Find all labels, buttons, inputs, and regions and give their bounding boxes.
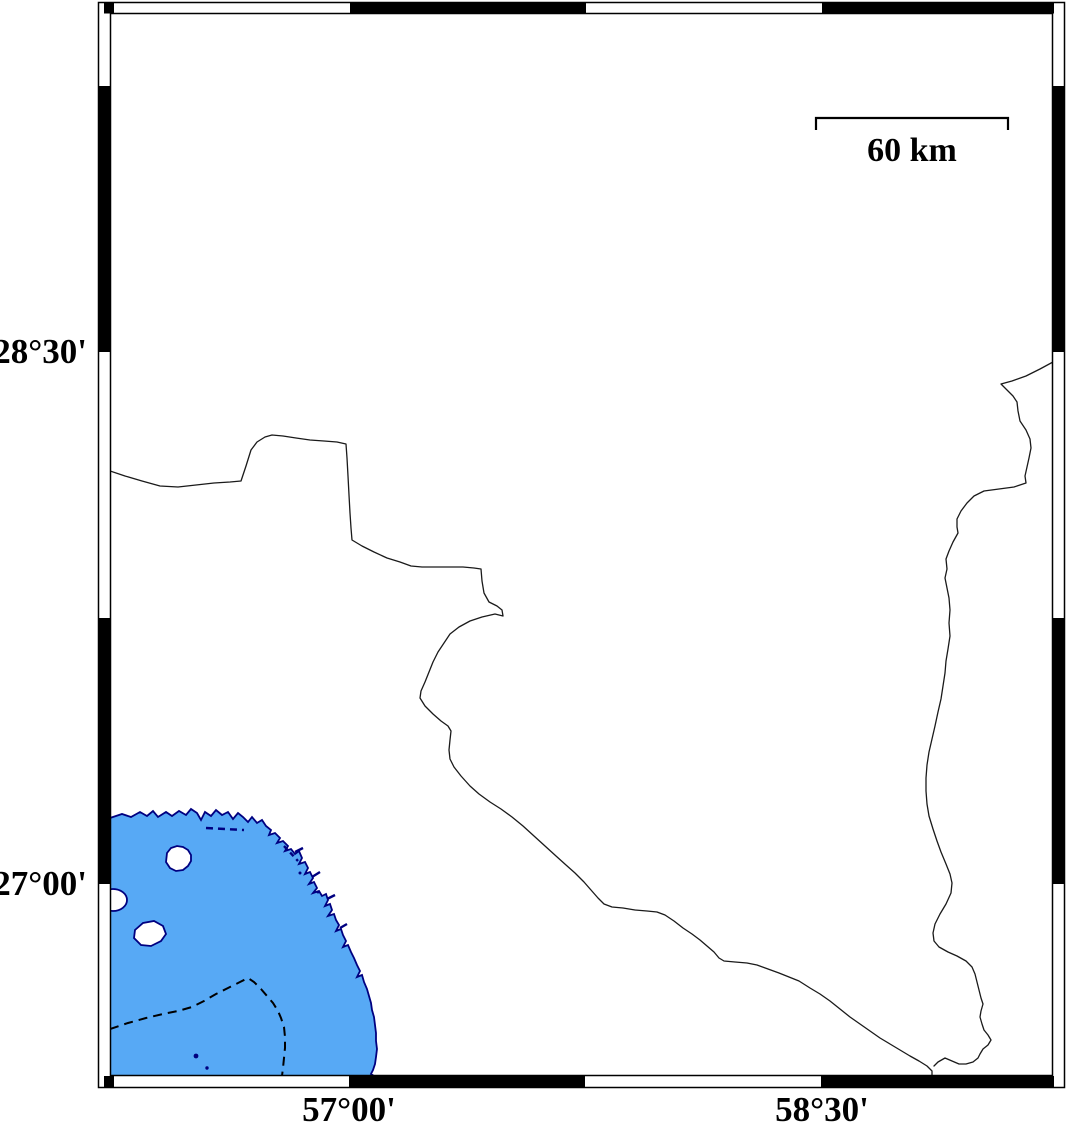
boundary-line-east bbox=[926, 362, 1053, 1066]
scale-bar-label: 60 km bbox=[867, 134, 957, 168]
lon-label-left: 57°00' bbox=[302, 1092, 396, 1124]
frame-tick-bottom-2 bbox=[349, 1076, 585, 1088]
frame-tick-bottom-3 bbox=[821, 1076, 1054, 1088]
coastal-spur-2 bbox=[312, 872, 320, 877]
lat-label-upper: 28°30' bbox=[0, 334, 87, 369]
island-1 bbox=[166, 846, 191, 871]
map-figure: 28°30' 27°00' 57°00' 58°30' 60 km bbox=[0, 0, 1066, 1124]
lat-label-lower: 27°00' bbox=[0, 866, 87, 901]
frame-tick-top-2 bbox=[350, 3, 586, 14]
frame-tick-left-2 bbox=[99, 618, 111, 884]
lon-label-right: 58°30' bbox=[775, 1092, 869, 1124]
sea-layer bbox=[99, 809, 377, 1076]
coastal-spur-3 bbox=[327, 895, 335, 899]
frame-tick-bottom-1 bbox=[104, 1076, 114, 1088]
islet-dot-1 bbox=[194, 1054, 199, 1059]
frame-tick-right-2 bbox=[1053, 618, 1065, 884]
frame-tick-left-1 bbox=[99, 86, 111, 352]
scale-bar-bracket bbox=[816, 118, 1008, 130]
frame-tick-top-1 bbox=[104, 3, 114, 14]
coastal-spur-4 bbox=[340, 924, 347, 928]
islet-dot-2 bbox=[205, 1066, 208, 1069]
islet-dot-3 bbox=[299, 872, 302, 875]
islet-dot-4 bbox=[317, 891, 320, 894]
frame-tick-top-3 bbox=[822, 3, 1054, 14]
frame-tick-right-1 bbox=[1053, 86, 1065, 352]
island-2 bbox=[99, 889, 127, 911]
